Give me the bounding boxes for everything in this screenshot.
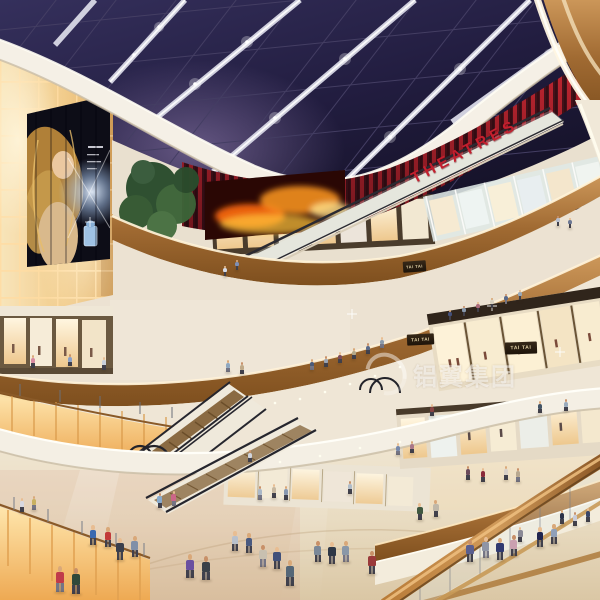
left-store-row [0, 306, 113, 374]
tai-tai-sign-1: TAI TAI [403, 260, 427, 273]
perfume-billboard [12, 95, 126, 270]
tai-tai-sign-2: TAI TAI [407, 333, 435, 345]
mall-atrium-render: THEATRES TAI TAI TAI TAI TAI TAI 铝翼集团 [0, 0, 600, 600]
mall-architecture-graphic [0, 0, 600, 600]
tai-tai-sign-3: TAI TAI [505, 341, 537, 354]
